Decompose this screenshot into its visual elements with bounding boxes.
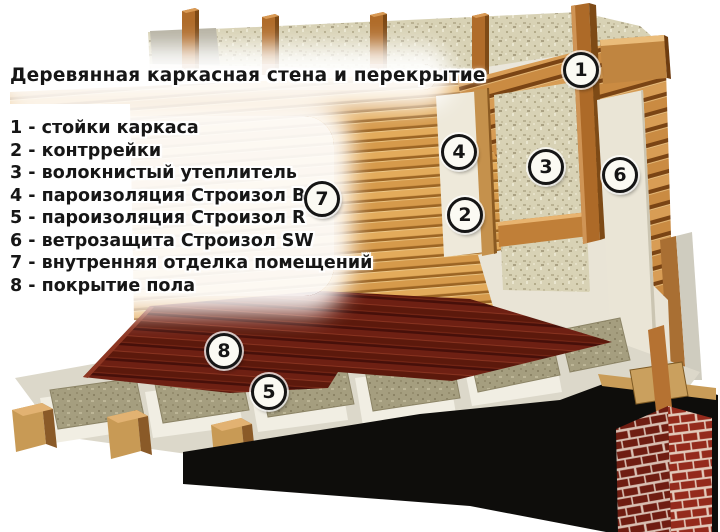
marker-8-floor-covering: 8 <box>206 333 242 369</box>
legend-item-8: 8 - покрытие пола <box>10 275 372 298</box>
legend-item-1: 1 - стойки каркаса <box>10 117 372 140</box>
marker-4-vapour-barrier-b: 4 <box>441 134 477 170</box>
legend-item-6: 6 - ветрозащита Строизол SW <box>10 230 372 253</box>
legend-item-7: 7 - внутренняя отделка помещений <box>10 252 372 275</box>
marker-1-frame-stud: 1 <box>563 52 599 88</box>
marker-3-insulation: 3 <box>528 149 564 185</box>
brick-pier <box>616 406 712 532</box>
diagram-stage: Деревянная каркасная стена и перекрытие … <box>0 0 720 532</box>
marker-6-wind-barrier: 6 <box>602 157 638 193</box>
marker-5-vapour-barrier-r: 5 <box>251 374 287 410</box>
legend-item-2: 2 - контррейки <box>10 140 372 163</box>
fibrous-insulation <box>494 81 590 292</box>
diagram-title: Деревянная каркасная стена и перекрытие <box>10 65 486 86</box>
marker-2-counter-battens: 2 <box>447 197 483 233</box>
marker-7-interior-finish: 7 <box>304 181 340 217</box>
